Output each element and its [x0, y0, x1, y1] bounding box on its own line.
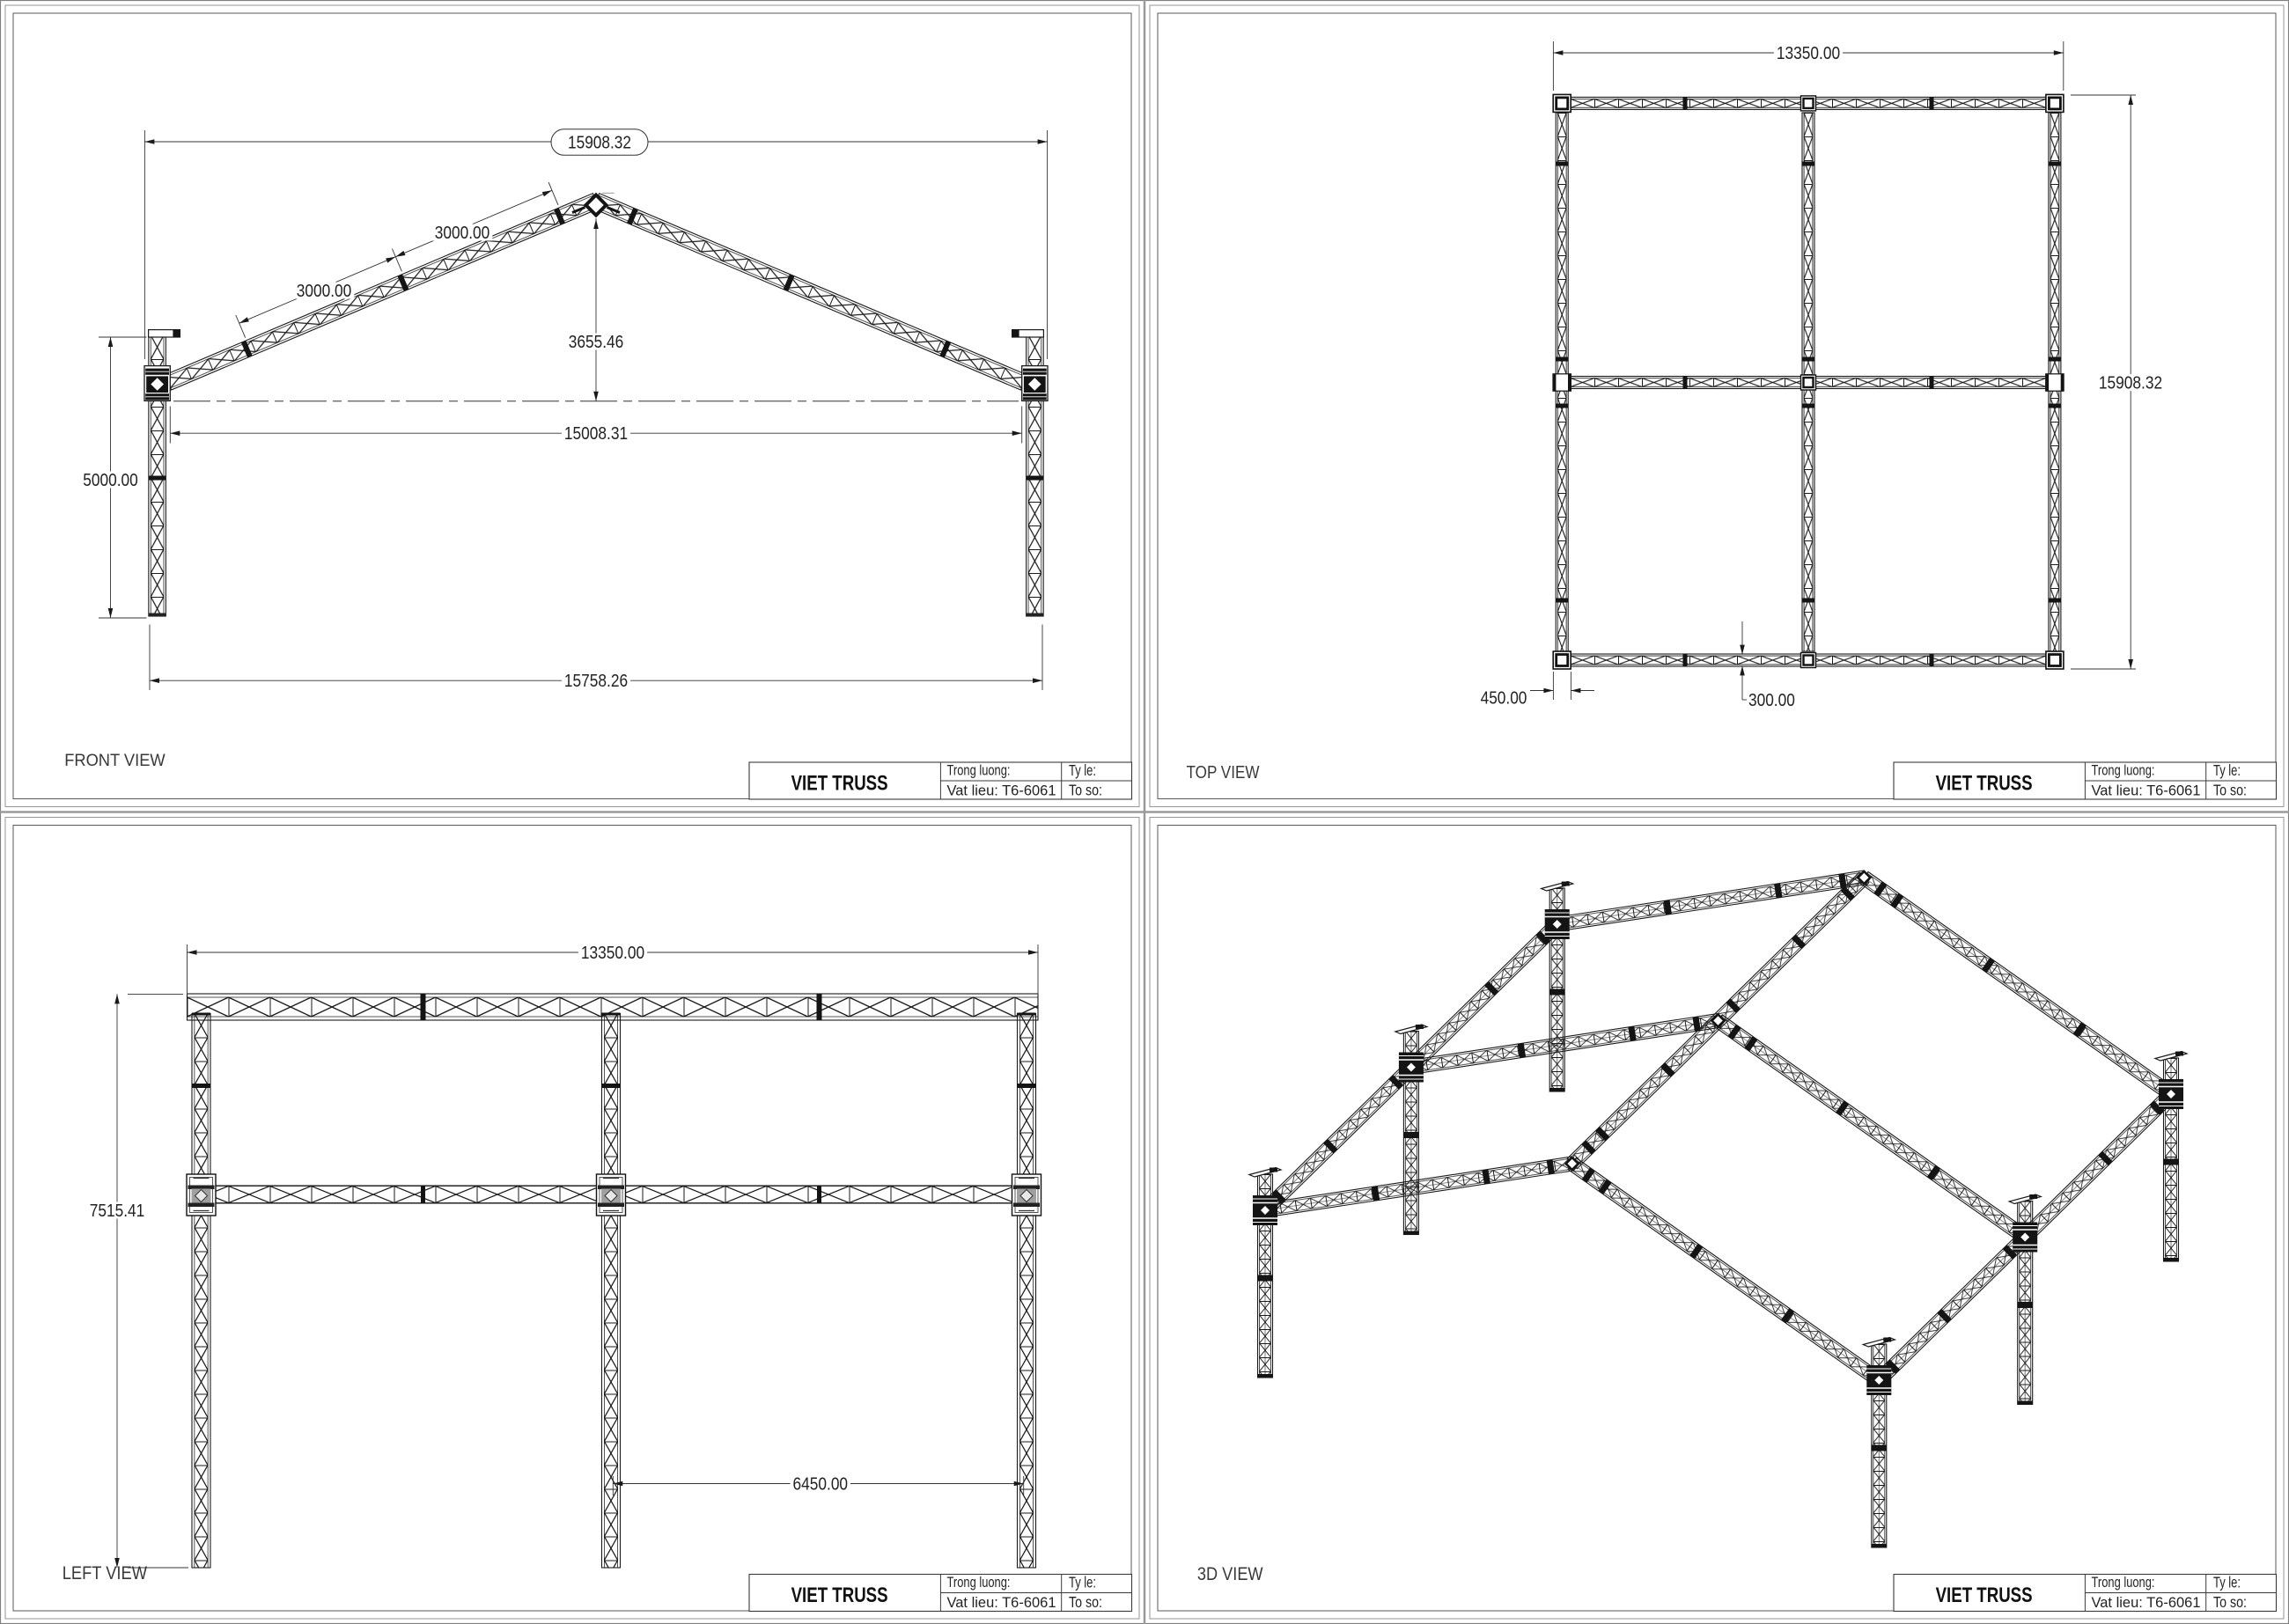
svg-text:Trong luong:: Trong luong: — [947, 763, 1011, 779]
svg-text:Trong luong:: Trong luong: — [947, 1575, 1011, 1591]
svg-text:To so:: To so: — [2213, 1593, 2247, 1611]
svg-text:15908.32: 15908.32 — [568, 133, 631, 152]
svg-text:FRONT VIEW: FRONT VIEW — [64, 751, 166, 770]
svg-text:300.00: 300.00 — [1748, 691, 1795, 710]
svg-text:15008.31: 15008.31 — [564, 424, 628, 444]
svg-text:Vat lieu: T6-6061: Vat lieu: T6-6061 — [2092, 1595, 2201, 1611]
svg-text:6450.00: 6450.00 — [793, 1474, 849, 1494]
svg-text:Ty le:: Ty le: — [2213, 1574, 2241, 1591]
svg-text:VIET TRUSS: VIET TRUSS — [791, 772, 888, 796]
svg-text:Vat lieu: T6-6061: Vat lieu: T6-6061 — [947, 783, 1056, 799]
svg-text:13350.00: 13350.00 — [1777, 44, 1840, 63]
svg-text:To so:: To so: — [1069, 782, 1102, 799]
svg-text:15758.26: 15758.26 — [564, 672, 628, 691]
svg-text:Trong luong:: Trong luong: — [2092, 1575, 2155, 1591]
svg-text:3655.46: 3655.46 — [569, 333, 624, 352]
svg-text:Ty le:: Ty le: — [1069, 1574, 1096, 1591]
svg-text:VIET TRUSS: VIET TRUSS — [1936, 1584, 2033, 1607]
svg-text:Vat lieu: T6-6061: Vat lieu: T6-6061 — [2092, 783, 2201, 799]
svg-text:Ty le:: Ty le: — [2213, 761, 2241, 779]
svg-text:Trong luong:: Trong luong: — [2092, 763, 2155, 779]
svg-text:15908.32: 15908.32 — [2099, 374, 2162, 393]
svg-text:LEFT VIEW: LEFT VIEW — [63, 1563, 147, 1584]
svg-text:450.00: 450.00 — [1481, 689, 1527, 709]
svg-text:3000.00: 3000.00 — [297, 282, 352, 301]
svg-text:3D VIEW: 3D VIEW — [1197, 1564, 1263, 1584]
svg-text:VIET TRUSS: VIET TRUSS — [1936, 772, 2033, 796]
svg-text:13350.00: 13350.00 — [581, 944, 644, 963]
svg-text:5000.00: 5000.00 — [83, 471, 138, 490]
svg-text:7515.41: 7515.41 — [90, 1201, 145, 1221]
svg-text:Ty le:: Ty le: — [1069, 761, 1096, 779]
svg-text:To so:: To so: — [1069, 1593, 1102, 1611]
svg-text:Vat lieu: T6-6061: Vat lieu: T6-6061 — [947, 1595, 1056, 1611]
svg-text:TOP VIEW: TOP VIEW — [1187, 762, 1261, 783]
svg-text:VIET TRUSS: VIET TRUSS — [791, 1584, 888, 1607]
svg-text:3000.00: 3000.00 — [435, 224, 490, 243]
svg-text:To so:: To so: — [2213, 782, 2247, 799]
